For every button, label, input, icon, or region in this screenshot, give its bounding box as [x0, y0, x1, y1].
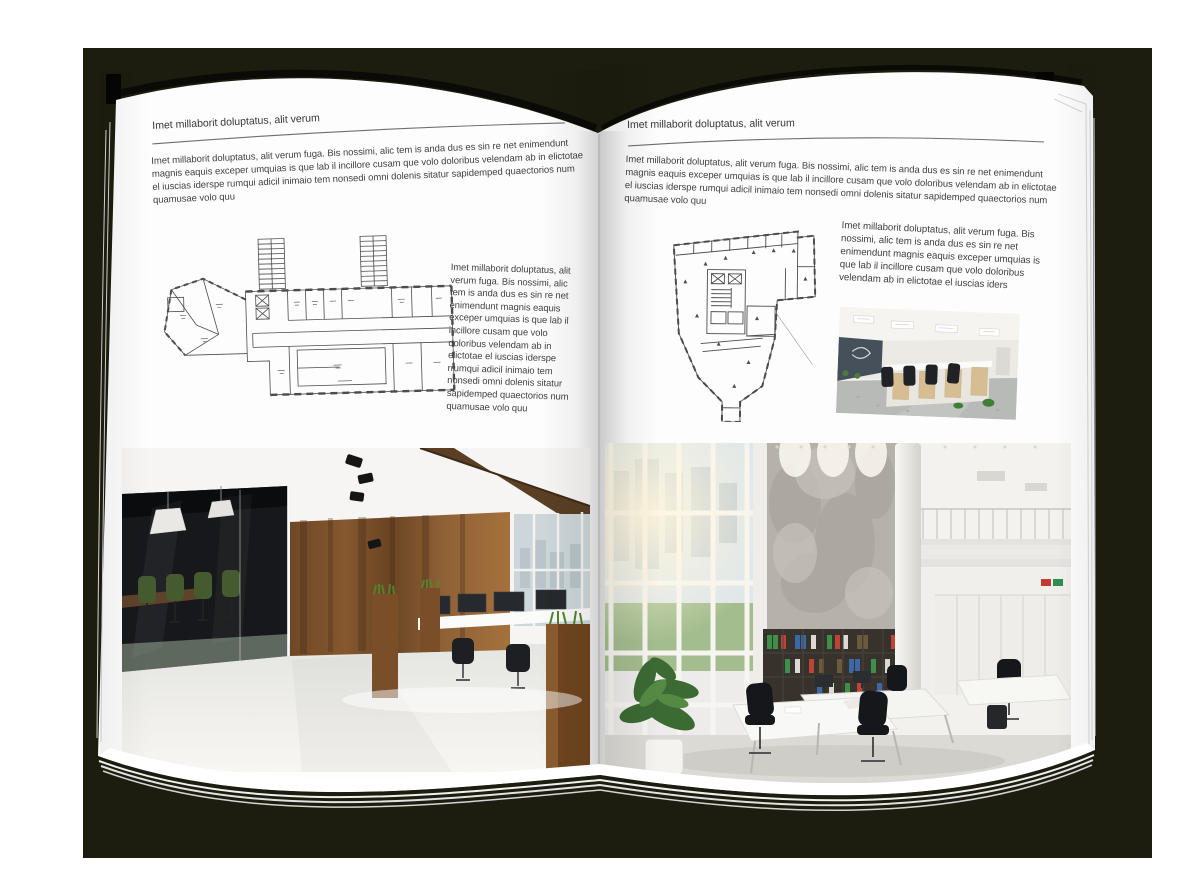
photo-office-bright — [605, 443, 1071, 783]
left-page-side-text: Imet millaborit doluptatus, alit verum f… — [446, 261, 574, 416]
safety-sign-red — [1041, 579, 1051, 586]
column — [895, 443, 921, 695]
photo-office-small — [836, 307, 1020, 420]
floor-plan-right — [650, 221, 817, 423]
right-page-side-text: Imet millaborit doluptatus, alit verum f… — [839, 219, 1054, 294]
right-header-rule — [626, 135, 1046, 149]
wall-spot-glows — [779, 443, 887, 477]
floor-plan-left — [158, 232, 463, 420]
plan-room-marks — [180, 298, 444, 385]
waste-bin — [987, 705, 1007, 729]
book-mockup-scene: Imet millaborit doluptatus, alit verum I… — [0, 0, 1200, 891]
photo-office-dark-wood — [122, 448, 590, 772]
safety-sign-green — [1053, 579, 1063, 586]
